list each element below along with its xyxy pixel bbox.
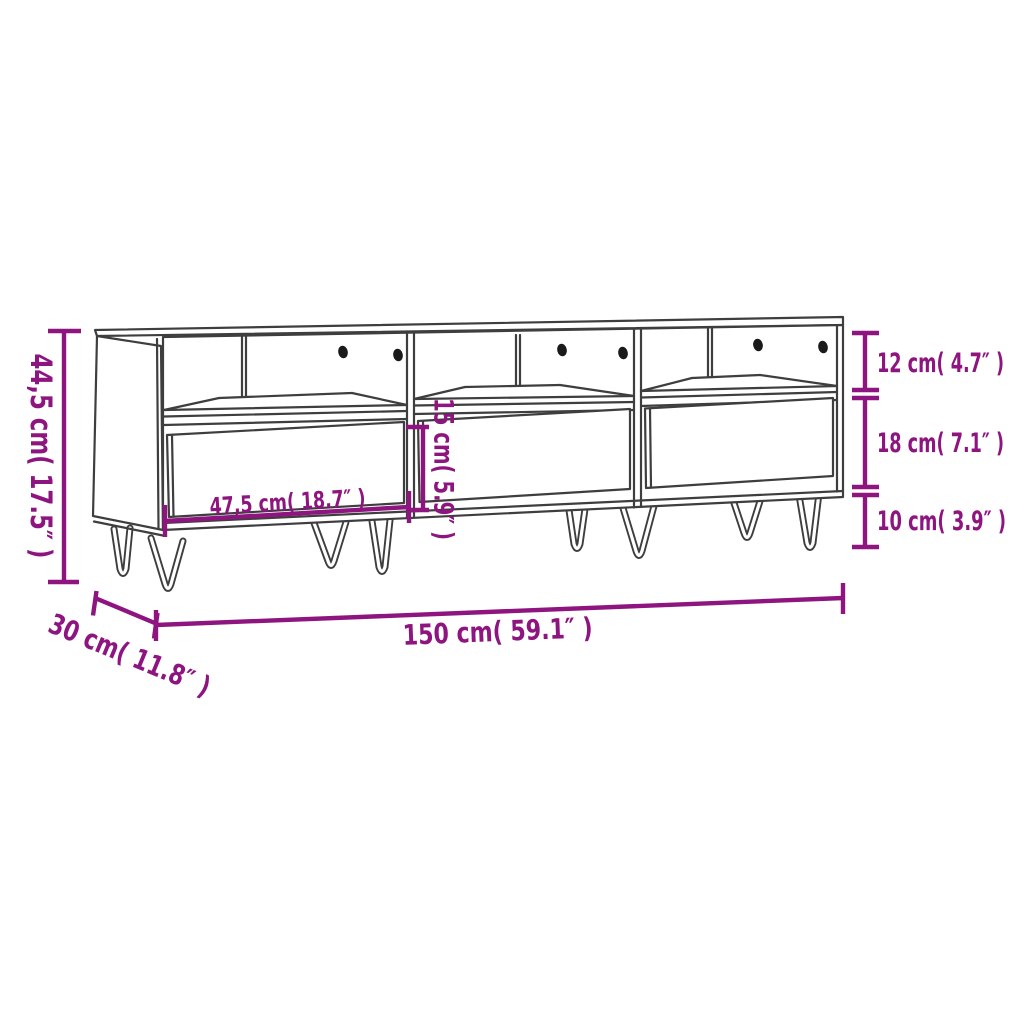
- dim-leg-height: 10 cm( 3.9″ ): [852, 495, 1006, 547]
- dim-compartment-height: 12 cm( 4.7″ ): [852, 333, 1004, 390]
- dim-overall-height-label: 44,5 cm( 17.5″ ): [24, 354, 58, 559]
- dim-depth: 30 cm( 11.8″ ): [44, 591, 216, 703]
- drawer-front-3: [645, 398, 833, 488]
- dim-overall-height: 44,5 cm( 17.5″ ): [24, 331, 81, 582]
- dim-drawer-height: 18 cm( 7.1″ ): [852, 398, 1004, 487]
- dim-overall-width-label: 150 cm( 59.1″ ): [402, 611, 593, 652]
- side-panel: [93, 336, 163, 530]
- dim-overall-width: 150 cm( 59.1″ ): [156, 583, 843, 652]
- furniture-diagram-canvas: 44,5 cm( 17.5″ ) 12 cm( 4.7″ ) 18 cm( 7.…: [0, 0, 1024, 1024]
- dim-drawer-height-label: 18 cm( 7.1″ ): [877, 428, 1004, 459]
- dim-inner-height-label: 15 cm( 5.9″ ): [428, 398, 459, 540]
- cabinet-drawing: [93, 317, 843, 589]
- dim-leg-height-label: 10 cm( 3.9″ ): [877, 506, 1006, 537]
- dimension-diagram: 44,5 cm( 17.5″ ) 12 cm( 4.7″ ) 18 cm( 7.…: [0, 0, 1024, 1024]
- dim-compartment-height-label: 12 cm( 4.7″ ): [877, 348, 1004, 379]
